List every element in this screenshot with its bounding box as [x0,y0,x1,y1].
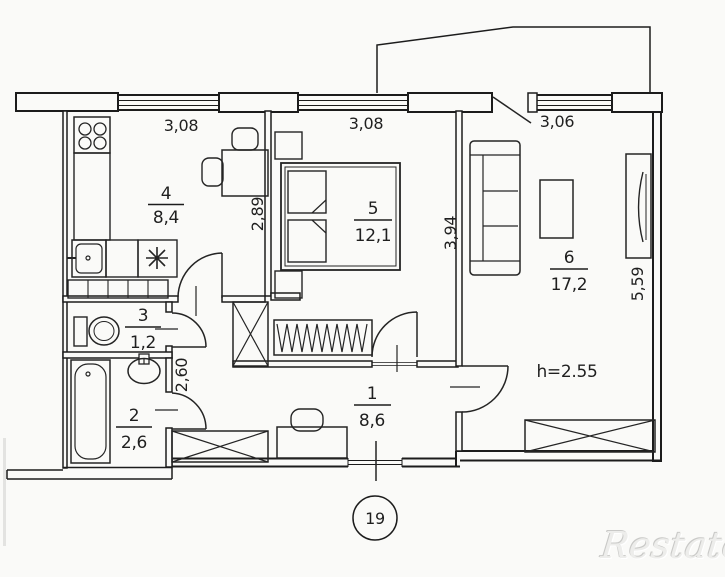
bathtub-icon [71,360,110,463]
apartment-floor-plan: 3,08 3,08 3,06 2,89 3,94 5,59 2,60 4 8,4… [0,0,725,577]
wc-door [172,313,206,347]
washing-machine-icon [138,240,177,277]
pier-bedroom-living [408,93,492,112]
pier-top-right-corner [612,93,662,112]
bathroom-wall-lower [166,428,172,467]
stove-icon [74,117,110,153]
room-4-number: 4 [161,184,172,204]
dim-living-window: 3,06 [540,112,575,131]
sofa-icon [470,141,520,275]
tv-stand-icon [626,154,651,258]
room-5-number: 5 [368,199,379,219]
alcove-hall-wall-right [417,361,458,367]
room-1-number: 1 [367,384,378,404]
room-label-hall: 1 8,6 [354,384,391,431]
dim-kitchen-depth: 2,89 [248,197,267,232]
balcony-outline [377,27,650,93]
dimension-labels: 3,08 3,08 3,06 2,89 3,94 5,59 2,60 [164,112,647,392]
floor-plan-page: { "page": { "background": "#fafaf8", "li… [0,0,725,577]
toilet-icon [74,317,119,346]
living-wardrobe-icon [525,420,655,452]
entrance-opening-sill [348,458,402,467]
kitchen-hall-wall-left [63,296,178,302]
interior-walls [63,111,462,467]
scan-edge-artifact [3,438,6,546]
living-room-door [462,366,508,412]
coat-rack-icon [274,320,372,355]
coffee-table-icon [540,180,573,238]
dim-bedroom-depth: 3,94 [441,216,460,251]
restate-watermark: Restate [598,524,725,574]
room-3-area: 1,2 [130,333,156,353]
wc-wall-upper [166,302,172,312]
bedroom-door [372,312,417,357]
room-3-number: 3 [138,306,149,326]
dim-kitchen-window: 3,08 [164,116,199,135]
living-room-bottom-wall [456,451,661,467]
room-6-number: 6 [564,248,575,268]
room-1-area: 8,6 [359,411,385,431]
kitchen-sink-icon [67,240,106,277]
kitchen-door [178,253,222,298]
balcony-door-leaf [493,97,531,123]
bathroom-block-bottom-wall [7,458,172,479]
kitchen-counter-icon [74,153,110,240]
room-label-bedroom: 5 12,1 [354,199,392,246]
hall-wardrobe-icon [172,431,268,462]
kitchen-chair-left-icon [202,158,223,186]
room-5-area: 12,1 [355,226,392,246]
left-exterior-wall [63,111,67,468]
right-exterior-wall [653,112,661,461]
top-wall-left-ledge [16,93,118,111]
kitchen-table-icon [222,150,268,196]
room-labels: 4 8,4 5 12,1 6 17,2 3 1,2 2 2,6 1 8,6 [116,184,598,453]
room-2-number: 2 [129,406,140,426]
room-label-living: 6 17,2 [550,248,588,295]
wardrobe-icon [233,302,268,366]
room-label-bathroom: 2 2,6 [116,406,152,453]
room-label-kitchen: 4 8,4 [148,184,184,228]
room-6-area: 17,2 [551,275,588,295]
balcony-door-jamb [528,93,537,112]
bedroom-door-threshold [372,363,417,366]
plan-number-badge: 19 [353,496,397,540]
dim-bedroom-window: 3,08 [349,114,384,133]
room-2-area: 2,6 [121,433,147,453]
nightstand-top-icon [275,132,302,159]
bathroom-door [172,393,206,429]
kitchen-chair-top-icon [232,128,258,150]
dim-living-depth: 5,59 [628,267,647,302]
kitchen-cabinet-icon [106,240,138,277]
hall-living-wall-lower [456,412,462,451]
ceiling-height-label: h=2.55 [536,362,597,382]
kitchen-hall-wall-right [222,296,265,302]
room-4-area: 8,4 [153,208,179,228]
plan-number-text: 19 [365,509,385,528]
pier-kitchen-bedroom [219,93,298,112]
dim-hall: 2,60 [172,358,191,393]
double-bed-icon [281,163,400,270]
